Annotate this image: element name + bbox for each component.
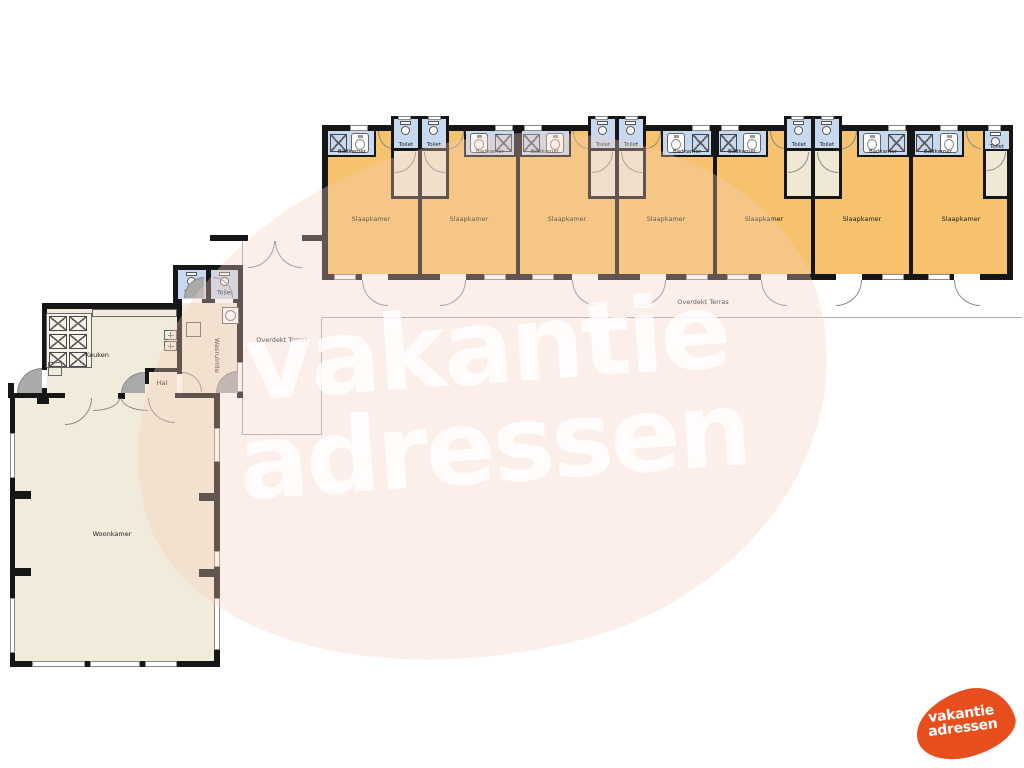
burner-icon <box>69 334 87 349</box>
room-label: Badkamer <box>924 149 952 155</box>
window <box>428 116 441 120</box>
window <box>90 661 140 667</box>
room-label: Toilet <box>990 144 1004 150</box>
room-label: Badkamer <box>728 149 756 155</box>
window <box>398 116 411 120</box>
floorplan-canvas: Badkamer Badkamer Badkamer Badkamer Badk… <box>0 0 1024 768</box>
burner-icon <box>49 334 67 349</box>
room-label: Badkamer <box>869 149 897 155</box>
window <box>145 661 177 667</box>
wall <box>10 500 15 568</box>
toilet-icon <box>597 121 608 135</box>
wall <box>10 568 31 576</box>
window <box>928 274 950 280</box>
room-label: Badkamer <box>338 149 366 155</box>
room-label: Badkamer <box>673 149 701 155</box>
watermark: vakantie adressen <box>144 275 836 520</box>
room-label: Keuken <box>85 351 109 359</box>
room-label: Toilet <box>820 142 834 148</box>
room-label: Toilet <box>792 142 806 148</box>
wall <box>10 576 15 598</box>
wall <box>210 235 248 241</box>
wall <box>839 151 842 199</box>
wall <box>983 151 986 199</box>
window <box>821 116 834 120</box>
window <box>524 125 542 131</box>
brand-logo: vakantie adressen <box>903 688 1021 764</box>
window <box>721 125 739 131</box>
window <box>791 116 804 120</box>
door-arc <box>836 280 862 306</box>
wall <box>784 151 787 199</box>
wall <box>37 393 49 404</box>
window <box>882 274 904 280</box>
room-label: Slaapkamer <box>942 215 981 223</box>
window <box>595 116 608 120</box>
window <box>625 116 638 120</box>
toilet-icon <box>400 121 411 135</box>
wall <box>986 196 1007 199</box>
window <box>888 125 906 131</box>
room-label: Slaapkamer <box>843 215 882 223</box>
wall <box>10 661 32 667</box>
toilet-icon <box>821 121 832 135</box>
door-arc <box>954 280 980 306</box>
window <box>350 125 368 131</box>
kitchen-unit <box>48 362 62 376</box>
wall <box>177 661 220 667</box>
window <box>692 125 710 131</box>
burner-icon <box>49 316 67 331</box>
toilet-icon <box>625 121 636 135</box>
room-label: Toilet <box>399 142 413 148</box>
wall <box>784 196 811 199</box>
window <box>988 125 1001 131</box>
wall <box>815 196 842 199</box>
toilet-icon <box>793 121 804 135</box>
kitchen-counter <box>92 309 177 317</box>
room-label: Woonkamer <box>93 530 132 538</box>
burner-icon <box>69 316 87 331</box>
wall <box>173 265 178 303</box>
window <box>940 125 958 131</box>
window <box>10 598 15 653</box>
door-arc <box>17 368 42 393</box>
wall <box>10 491 31 499</box>
toilet-icon <box>428 121 439 135</box>
window <box>32 661 85 667</box>
window <box>10 433 15 478</box>
wall <box>10 393 15 433</box>
wall <box>811 116 815 199</box>
window <box>495 125 513 131</box>
